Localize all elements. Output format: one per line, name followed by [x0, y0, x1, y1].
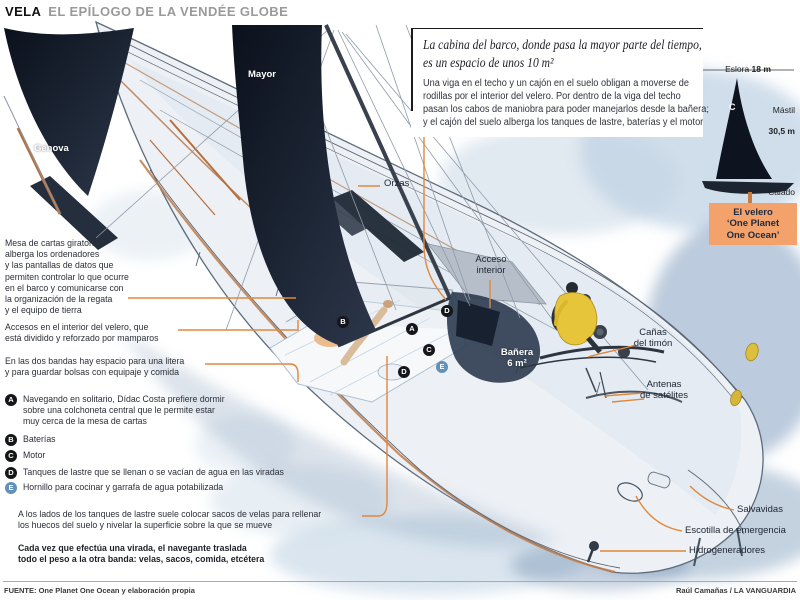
- bowsprit: [18, 128, 60, 214]
- legend-text-d: Tanques de lastre que se llenan o se vac…: [23, 467, 284, 478]
- deck-marker-a: A: [406, 323, 418, 335]
- label-genova: Génova: [34, 144, 69, 155]
- section-kicker: VELA: [5, 4, 41, 19]
- label-escotilla: Escotilla de emergencia: [685, 526, 786, 537]
- genoa-sail: [4, 28, 134, 196]
- label-antenas: Antenas de satélites: [628, 380, 700, 401]
- note-virada: Cada vez que efectúa una virada, el nave…: [18, 543, 322, 565]
- legend-marker-a: A: [5, 394, 17, 406]
- boom: [338, 298, 450, 346]
- label-canas-timon: Cañas del timón: [620, 328, 686, 349]
- infographic-page: VELAEL EPÍLOGO DE LA VENDÉE GLOBE La cab…: [0, 0, 800, 600]
- deck-marker-d2: D: [398, 366, 410, 378]
- sail-logo-icon: C: [729, 102, 736, 112]
- label-banera: Bañera 6 m²: [494, 348, 540, 369]
- note-mesa-cartas: Mesa de cartas giratoria, alberga los or…: [5, 238, 166, 316]
- author-credit: Raúl Camañas / LA VANGUARDIA: [676, 586, 796, 595]
- note-sacos: A los lados de los tanques de lastre sue…: [18, 509, 358, 531]
- label-hidrogeneradores: Hidrogeneradores: [689, 546, 765, 557]
- label-orzas: Orzas: [384, 179, 409, 190]
- boat-name-box: El velero ‘One Planet One Ocean’: [709, 203, 797, 245]
- label-acceso-interior: Acceso interior: [462, 255, 520, 276]
- legend-text-b: Baterías: [23, 434, 56, 445]
- note-bandas: En las dos bandas hay espacio para una l…: [5, 356, 253, 378]
- deck-marker-b: B: [337, 316, 349, 328]
- eslora-dimension: Eslora 18 m: [702, 53, 794, 74]
- deck-marker-d1: D: [441, 305, 453, 317]
- legend-item-d: D Tanques de lastre que se llenan o se v…: [5, 467, 307, 479]
- note-accesos: Accesos en el interior del velero, que e…: [5, 322, 226, 344]
- legend-text-e: Hornillo para cocinar y garrafa de agua …: [23, 482, 223, 493]
- intro-body: Una viga en el techo y un cajón en el su…: [423, 77, 681, 129]
- label-mayor: Mayor: [248, 70, 276, 81]
- page-title: EL EPÍLOGO DE LA VENDÉE GLOBE: [48, 4, 288, 19]
- intro-title: La cabina del barco, donde pasa la mayor…: [423, 36, 664, 71]
- legend-marker-d: D: [5, 467, 17, 479]
- legend-text-c: Motor: [23, 450, 45, 461]
- mastil-dimension: Mástil 30,5 m: [745, 94, 795, 137]
- label-salvavidas: Salvavidas: [737, 505, 783, 516]
- deck-marker-e: E: [436, 361, 448, 373]
- legend-item-a: A Navegando en solitario, Dídac Costa pr…: [5, 394, 242, 428]
- legend-item-b: B Baterías: [5, 434, 58, 446]
- source-credit: FUENTE: One Planet One Ocean y elaboraci…: [4, 586, 195, 595]
- legend-text-a: Navegando en solitario, Dídac Costa pref…: [23, 394, 225, 428]
- footer-divider: [3, 581, 797, 582]
- legend-marker-b: B: [5, 434, 17, 446]
- legend-item-c: C Motor: [5, 450, 47, 462]
- intro-box: La cabina del barco, donde pasa la mayor…: [411, 28, 703, 137]
- header: VELAEL EPÍLOGO DE LA VENDÉE GLOBE: [5, 4, 288, 19]
- legend-marker-c: C: [5, 450, 17, 462]
- legend-item-e: E Hornillo para cocinar y garrafa de agu…: [5, 482, 241, 494]
- deck-marker-c: C: [423, 344, 435, 356]
- sailor-figure: [555, 282, 600, 352]
- legend-marker-e: E: [5, 482, 17, 494]
